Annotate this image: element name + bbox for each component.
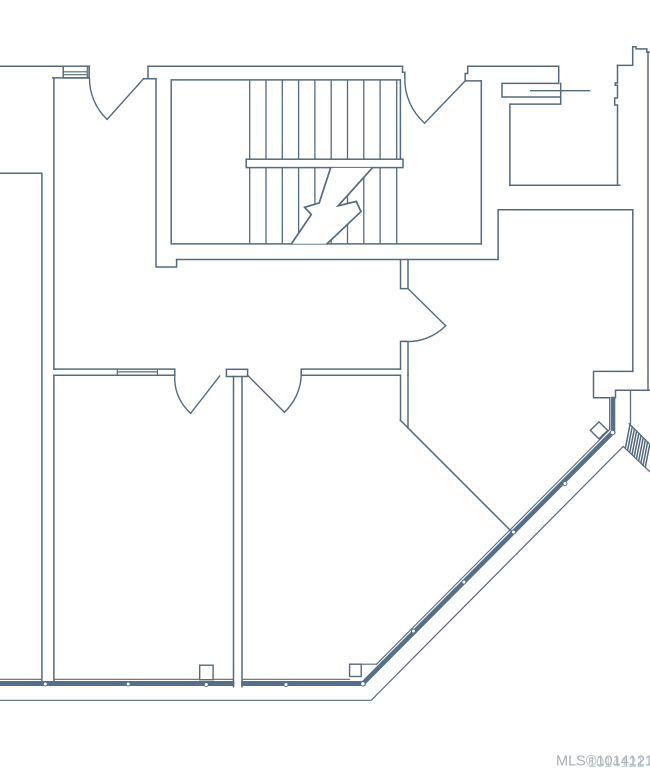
svg-text:MLS®1014121: MLS®1014121 bbox=[556, 754, 650, 768]
